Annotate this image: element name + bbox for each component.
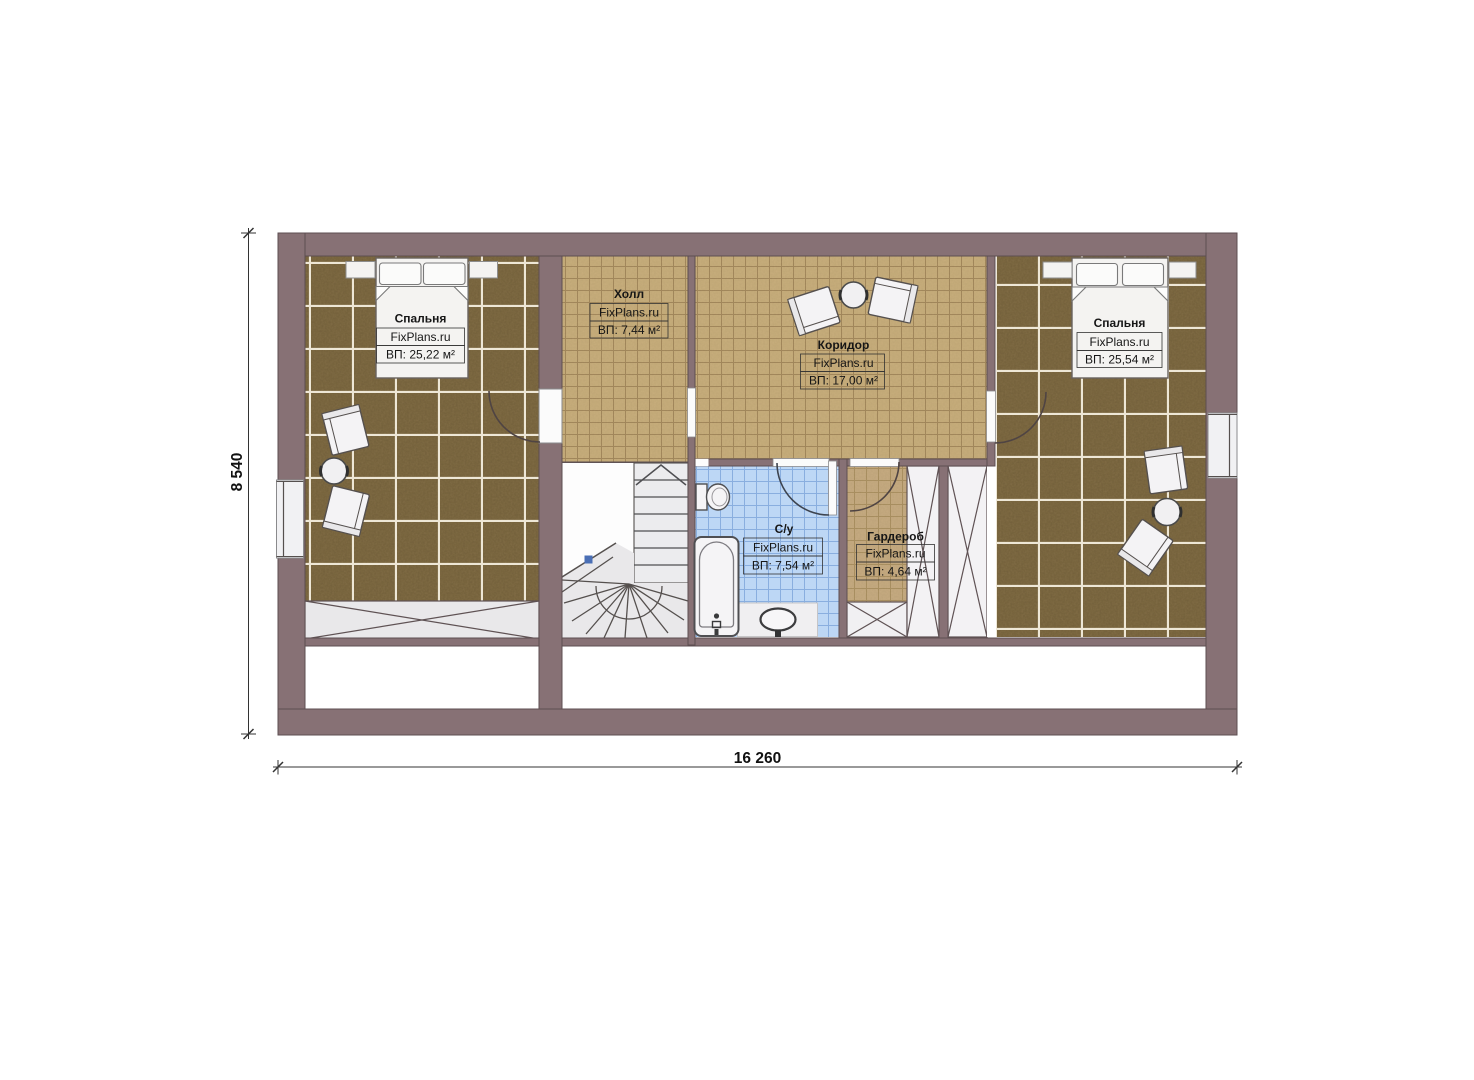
svg-text:FixPlans.ru: FixPlans.ru <box>1089 335 1149 349</box>
svg-text:FixPlans.ru: FixPlans.ru <box>390 330 450 344</box>
svg-text:ВП: 17,00 м²: ВП: 17,00 м² <box>809 374 878 388</box>
svg-text:Коридор: Коридор <box>818 338 870 352</box>
svg-text:Спальня: Спальня <box>395 312 447 326</box>
svg-text:ВП: 25,22 м²: ВП: 25,22 м² <box>386 348 455 362</box>
svg-text:8 540: 8 540 <box>229 453 246 492</box>
svg-text:ВП: 7,54 м²: ВП: 7,54 м² <box>752 559 814 573</box>
svg-text:16 260: 16 260 <box>734 750 781 767</box>
svg-text:ВП: 4,64 м²: ВП: 4,64 м² <box>864 565 926 579</box>
svg-text:Гардероб: Гардероб <box>867 530 924 544</box>
svg-text:Спальня: Спальня <box>1094 316 1146 330</box>
svg-text:FixPlans.ru: FixPlans.ru <box>865 547 925 561</box>
svg-text:FixPlans.ru: FixPlans.ru <box>813 356 873 370</box>
svg-text:FixPlans.ru: FixPlans.ru <box>753 541 813 555</box>
svg-text:С/у: С/у <box>775 522 794 536</box>
svg-text:Холл: Холл <box>614 287 644 301</box>
svg-text:ВП: 25,54 м²: ВП: 25,54 м² <box>1085 353 1154 367</box>
svg-text:FixPlans.ru: FixPlans.ru <box>599 306 659 320</box>
svg-text:ВП: 7,44 м²: ВП: 7,44 м² <box>598 323 660 337</box>
